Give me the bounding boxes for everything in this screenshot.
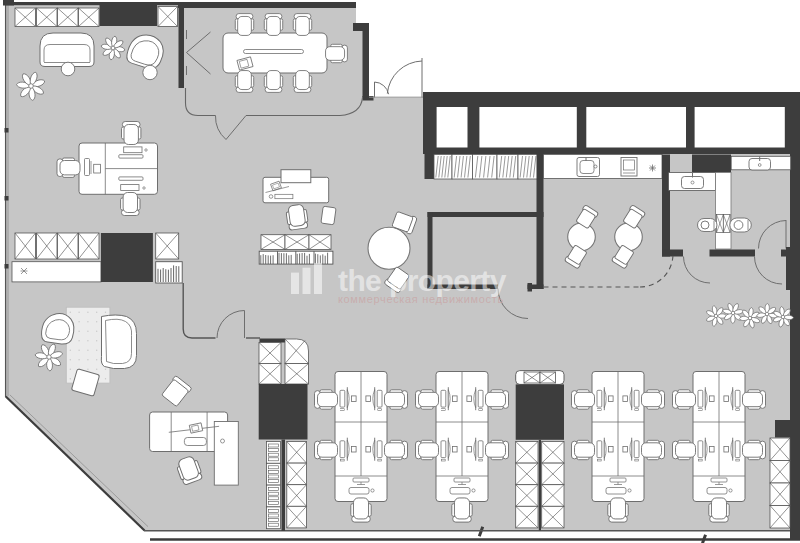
- svg-text:the property: the property: [338, 264, 507, 297]
- svg-text:коммерческая недвижимость: коммерческая недвижимость: [338, 293, 504, 305]
